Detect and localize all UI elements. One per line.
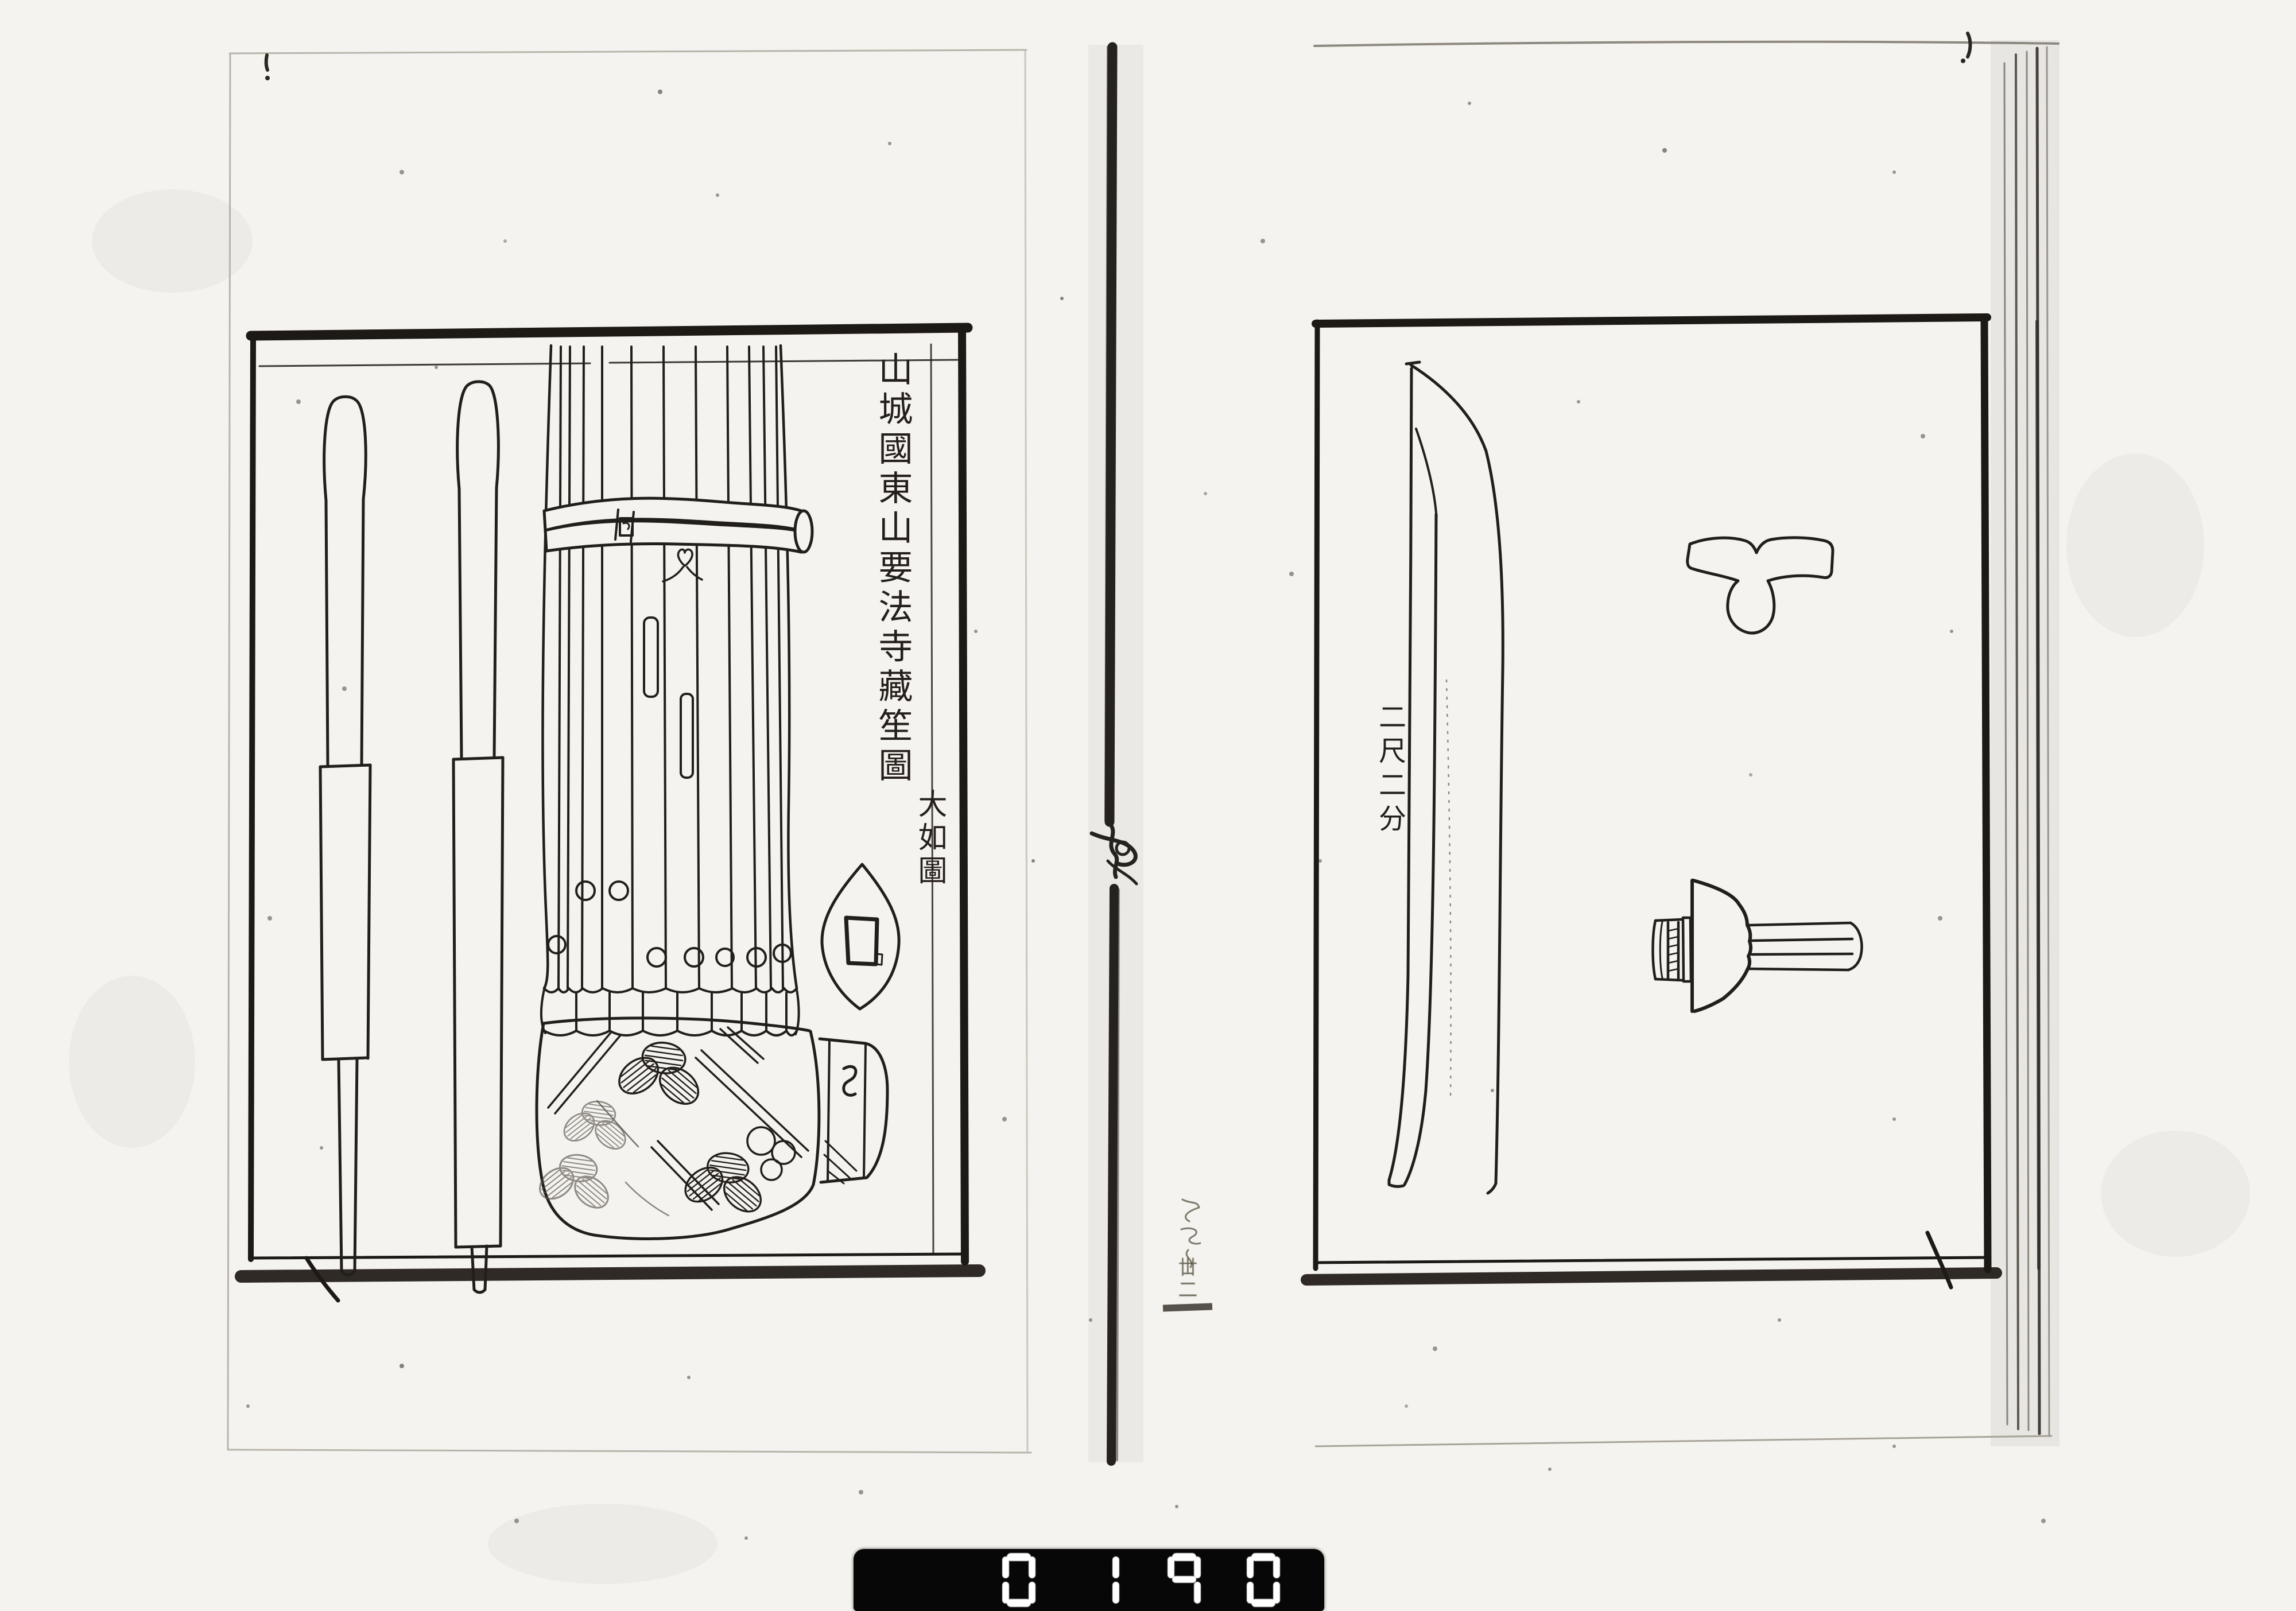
- counter-digit: [1086, 1553, 1119, 1607]
- paulownia-crests: [534, 1040, 767, 1218]
- left-page-title: 山城國東山要法寺藏笙圖: [868, 351, 918, 787]
- fitting-y-illustration: [1688, 538, 1833, 633]
- blade-measurement: 二尺二分: [1370, 702, 1410, 838]
- paper-shading: [69, 40, 2250, 1584]
- sho-pipes-illustration: [320, 382, 503, 1292]
- left-page-size-note: 大如圖: [908, 789, 951, 888]
- scan-line-art: [0, 0, 2296, 1611]
- counter-digit: [1247, 1553, 1280, 1607]
- sho-wind-chamber: [537, 1018, 819, 1239]
- sho-bundle-details: [544, 498, 812, 966]
- scanned-book-spread: 山城國東山要法寺藏笙圖 大如圖 二尺二分 丗二: [0, 0, 2296, 1611]
- ferrule-illustration: [1653, 880, 1862, 1011]
- counter-digit: [1002, 1553, 1035, 1607]
- gutter-annotation: 丗二: [1172, 1257, 1200, 1302]
- sho-pipe-bundle: [541, 346, 799, 1035]
- bundle-band: [544, 498, 812, 552]
- sho-mouthpiece: [820, 1039, 887, 1183]
- berry-crest: [747, 1127, 795, 1180]
- reed-plate: [822, 864, 899, 1009]
- scan-noise-specks: [246, 90, 2046, 1540]
- frame-counter: [854, 1549, 1324, 1611]
- counter-digit: [1168, 1553, 1201, 1607]
